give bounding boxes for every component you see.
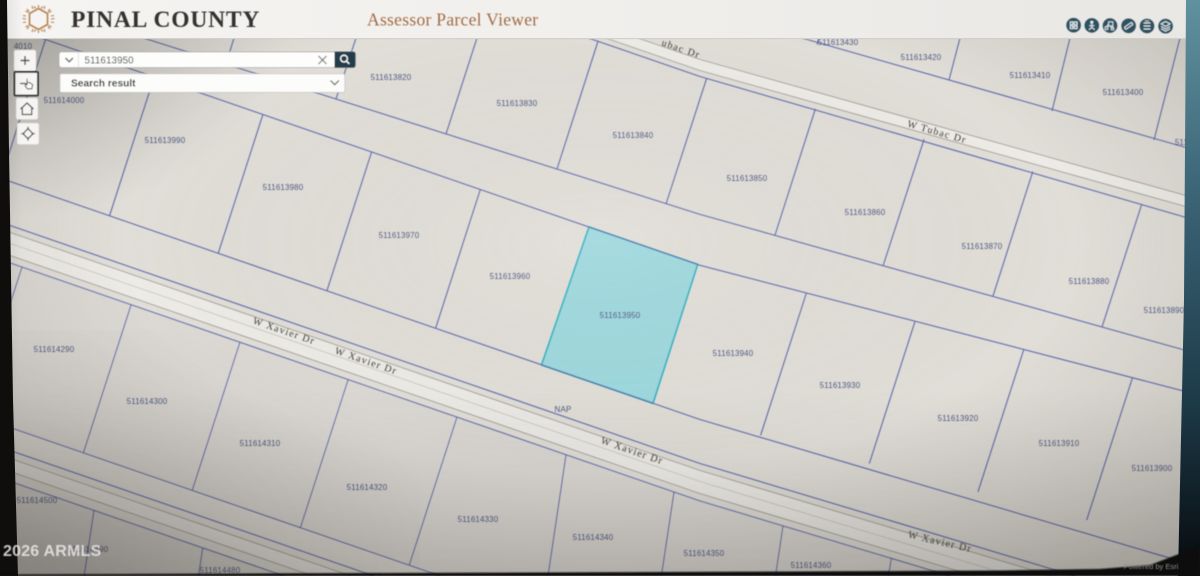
svg-text:2026 ARMLS: 2026 ARMLS [3, 543, 101, 560]
svg-text:Powered by Esri: Powered by Esri [1124, 562, 1179, 571]
svg-text:511613950: 511613950 [85, 56, 135, 67]
svg-text:Search result: Search result [71, 78, 136, 89]
svg-text:Assessor Parcel Viewer: Assessor Parcel Viewer [367, 10, 538, 30]
svg-text:PINAL COUNTY: PINAL COUNTY [71, 7, 260, 33]
